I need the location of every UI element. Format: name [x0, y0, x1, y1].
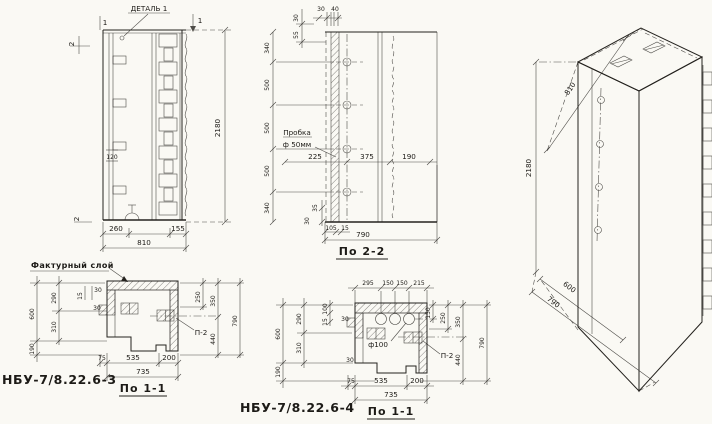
- embed-label: П-2: [441, 351, 454, 360]
- dim-label: 75: [347, 378, 355, 385]
- dim-label: 35: [312, 204, 319, 212]
- dim-label: 440: [210, 333, 217, 345]
- dim-label: 790: [356, 230, 370, 239]
- section-2-2-view: 340 500 500 500 340 30 40 30 55 Пробка ф…: [264, 6, 440, 259]
- plan-view-nbu3: Фактурный слой 600 190 290 310 30 15 30 …: [2, 261, 244, 396]
- dim-label: 500: [264, 79, 271, 91]
- dim-label: 55: [293, 31, 300, 39]
- plan-view-nbu4: 295 150 150 215 600 190 290 310 100 15 3…: [240, 280, 491, 419]
- dim-label: 30: [94, 287, 102, 294]
- dim-label: 30: [93, 305, 101, 312]
- section-mark-2-top: 2: [67, 42, 76, 47]
- plan3-title: По 1-1: [120, 382, 166, 395]
- plan4-title: По 1-1: [368, 405, 414, 418]
- section22-dim-lines: [273, 9, 437, 244]
- dim-label: 30: [304, 217, 311, 225]
- plan4-part-label: НБУ-7/8.22.6-4: [240, 400, 355, 415]
- dim-label: 500: [264, 165, 271, 177]
- dim-label: 350: [455, 316, 462, 328]
- section-mark-1-left: 1: [103, 18, 108, 27]
- dim-label: 190: [402, 152, 416, 161]
- dim-label: 600: [275, 328, 282, 340]
- dim-label: 30: [317, 6, 325, 13]
- dim-label: 810: [562, 80, 577, 97]
- front-extension-lines: [103, 30, 232, 252]
- front-key-column: [159, 34, 177, 215]
- dim-label: 600: [29, 308, 36, 320]
- embed-label: П-2: [195, 328, 208, 337]
- dim-label: 2180: [213, 118, 222, 137]
- plug-callout-line1: Пробка: [283, 128, 311, 137]
- dim-label: 790: [479, 337, 486, 349]
- iso-dim-lines: [532, 28, 656, 391]
- dim-label: 310: [51, 321, 58, 333]
- plan3-dim-ticks: [34, 280, 243, 380]
- dim-label: 30: [341, 316, 349, 323]
- dim-label: 15: [341, 225, 349, 232]
- section-mark-1-right: 1: [198, 16, 203, 25]
- front-labels: ДЕТАЛЬ 1 2 2 1 1 120 260 155 810 2180: [67, 4, 222, 247]
- dim-label: 75: [98, 355, 106, 362]
- dim-label: 290: [296, 313, 303, 325]
- section22-holes: [336, 58, 363, 196]
- dim-label: 340: [264, 202, 271, 214]
- dim-label: 295: [362, 280, 374, 287]
- dim-label: 15: [77, 292, 84, 300]
- dim-label: 120: [106, 154, 118, 161]
- dim-label: 100: [322, 303, 329, 315]
- dim-label: 150: [396, 280, 408, 287]
- dim-label: 200: [410, 376, 424, 385]
- section22-title: По 2-2: [339, 245, 385, 258]
- dim-label: 440: [455, 354, 462, 366]
- dim-label: 215: [413, 280, 425, 287]
- dim-label: 155: [171, 224, 185, 233]
- dim-label: 500: [264, 122, 271, 134]
- section22-outline: [325, 32, 437, 222]
- dim-label: 735: [384, 390, 398, 399]
- dim-label: 535: [374, 376, 388, 385]
- dim-label: 600: [561, 279, 578, 295]
- dim-label: 735: [136, 367, 150, 376]
- iso-labels: 810 2180 600 790: [524, 80, 578, 310]
- dim-label: 790: [545, 294, 562, 310]
- dim-label: 190: [275, 366, 282, 378]
- ribbed-edge: [392, 36, 394, 218]
- dim-label: 260: [109, 224, 123, 233]
- dim-label: 535: [126, 353, 140, 362]
- technical-drawing: ДЕТАЛЬ 1 2 2 1 1 120 260 155 810 2180: [0, 0, 712, 424]
- front-outline: [103, 30, 187, 220]
- dim-label: 105: [325, 225, 337, 232]
- dim-label: 150: [425, 307, 432, 319]
- plan3-dim-lines: [30, 276, 244, 381]
- section22-labels: 340 500 500 500 340 30 40 30 55 Пробка ф…: [264, 6, 416, 259]
- dim-label: 2180: [524, 158, 533, 177]
- plan3-part-label: НБУ-7/8.22.6-3: [2, 372, 117, 387]
- dim-label: 30: [346, 357, 354, 364]
- isometric-view: 810 2180 600 790: [524, 28, 712, 391]
- dim-label: 250: [195, 291, 202, 303]
- dim-label: 790: [232, 315, 239, 327]
- dim-label: 375: [360, 152, 374, 161]
- dim-label: 350: [210, 295, 217, 307]
- lifting-loop: [125, 205, 139, 220]
- blueprint-sheet: ДЕТАЛЬ 1 2 2 1 1 120 260 155 810 2180: [0, 0, 712, 424]
- plug-callout-line2: ф 50мм: [283, 140, 311, 149]
- dim-label: 310: [296, 342, 303, 354]
- iso-face-holes: [595, 88, 605, 242]
- dim-label: 290: [51, 292, 58, 304]
- dim-label: 40: [331, 6, 339, 13]
- front-elevation-view: ДЕТАЛЬ 1 2 2 1 1 120 260 155 810 2180: [67, 4, 232, 252]
- dim-label: 250: [440, 312, 447, 324]
- finish-layer-callout: Фактурный слой: [31, 261, 114, 270]
- dim-label: 225: [308, 152, 322, 161]
- iso-top-holes: [610, 42, 665, 67]
- dim-label: 30: [293, 14, 300, 22]
- detail-callout-label: ДЕТАЛЬ 1: [131, 4, 168, 13]
- hole-dia-label: ф100: [368, 340, 388, 349]
- section-mark-2-bottom: 2: [72, 217, 81, 222]
- ribbed-edge: [185, 34, 187, 216]
- dim-label: 15: [322, 318, 329, 326]
- dim-label: 200: [162, 353, 176, 362]
- dim-label: 190: [29, 343, 36, 355]
- iso-edge-ribs: [703, 65, 712, 316]
- dim-label: 810: [137, 238, 151, 247]
- dim-label: 340: [264, 42, 271, 54]
- iso-block: [578, 28, 702, 391]
- dim-label: 150: [382, 280, 394, 287]
